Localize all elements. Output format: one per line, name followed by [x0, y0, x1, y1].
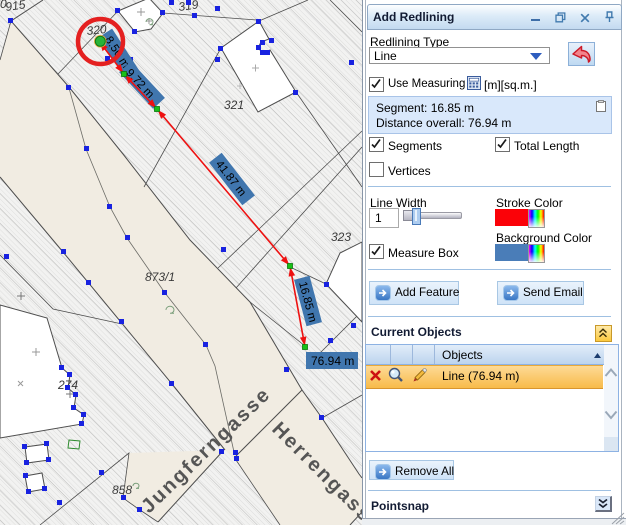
svg-text:321: 321: [224, 98, 244, 112]
svg-text:858: 858: [112, 483, 132, 497]
svg-text:873/1: 873/1: [145, 270, 175, 284]
svg-text:323: 323: [331, 230, 351, 244]
svg-text:0: 0: [0, 0, 7, 11]
svg-text:76.94 m: 76.94 m: [311, 354, 354, 368]
